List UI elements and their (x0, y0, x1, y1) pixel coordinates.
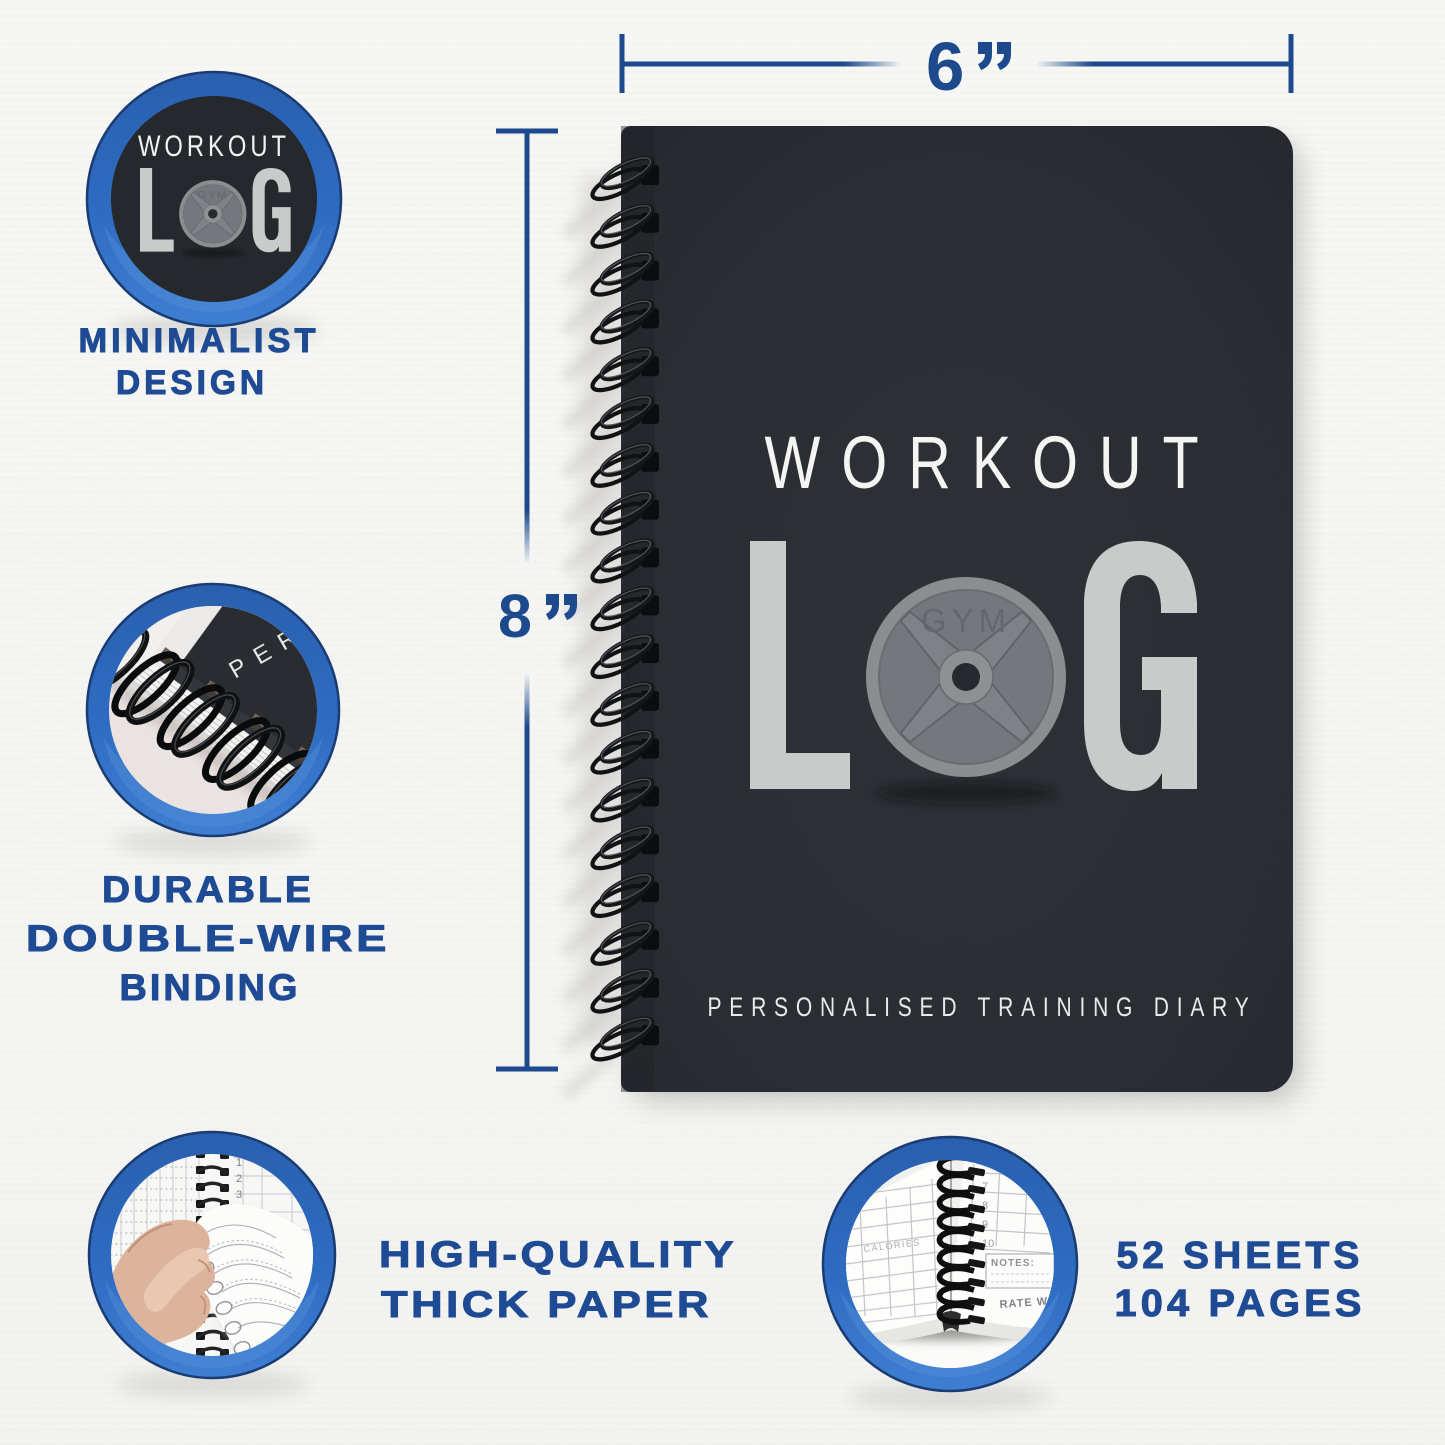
svg-text:6: 6 (926, 28, 964, 105)
svg-text:3: 3 (236, 1189, 242, 1201)
svg-text:1: 1 (236, 1157, 242, 1169)
svg-text:MINIMALIST: MINIMALIST (79, 322, 320, 360)
svg-text:BINDING: BINDING (120, 967, 301, 1008)
svg-text:52 SHEETS: 52 SHEETS (1117, 1235, 1364, 1277)
svg-text:WORKOUT: WORKOUT (138, 130, 290, 163)
svg-text:8: 8 (498, 582, 532, 650)
svg-text:DURABLE: DURABLE (102, 869, 314, 910)
svg-text:DOUBLE-WIRE: DOUBLE-WIRE (26, 918, 390, 959)
svg-text:WORKOUT: WORKOUT (765, 421, 1220, 504)
svg-text:2: 2 (236, 1173, 242, 1185)
svg-text:DESIGN: DESIGN (116, 364, 268, 402)
svg-text:PERSONALISED TRAINING DIARY: PERSONALISED TRAINING DIARY (708, 992, 1257, 1022)
svg-text:THICK PAPER: THICK PAPER (381, 1284, 712, 1325)
svg-text:GYM: GYM (921, 602, 1011, 639)
svg-text:104 PAGES: 104 PAGES (1115, 1283, 1366, 1325)
svg-text:NOTES:: NOTES: (991, 1258, 1035, 1269)
svg-text:HIGH-QUALITY: HIGH-QUALITY (379, 1234, 737, 1275)
